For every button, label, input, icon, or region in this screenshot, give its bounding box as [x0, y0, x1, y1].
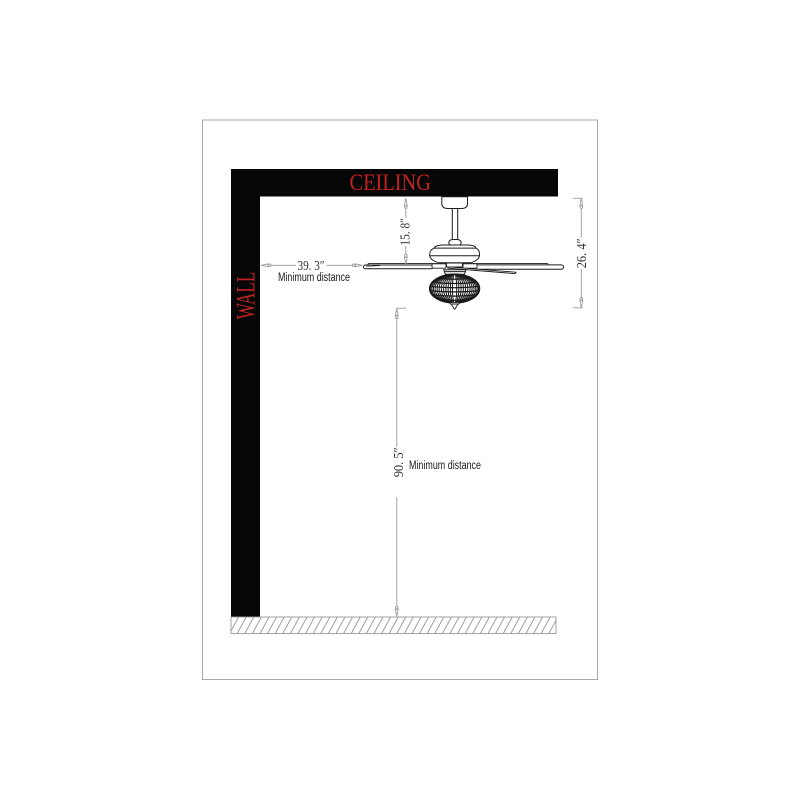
svg-text:15. 8″: 15. 8″	[398, 218, 413, 246]
svg-text:CEILING: CEILING	[350, 170, 432, 195]
svg-text:Minimum distance: Minimum distance	[409, 460, 481, 472]
svg-text:WALL: WALL	[232, 272, 261, 320]
svg-text:26. 4″: 26. 4″	[574, 238, 589, 268]
svg-text:90. 5″: 90. 5″	[391, 447, 406, 477]
svg-text:Minimum distance: Minimum distance	[278, 272, 350, 284]
svg-text:39. 3″: 39. 3″	[298, 258, 325, 273]
